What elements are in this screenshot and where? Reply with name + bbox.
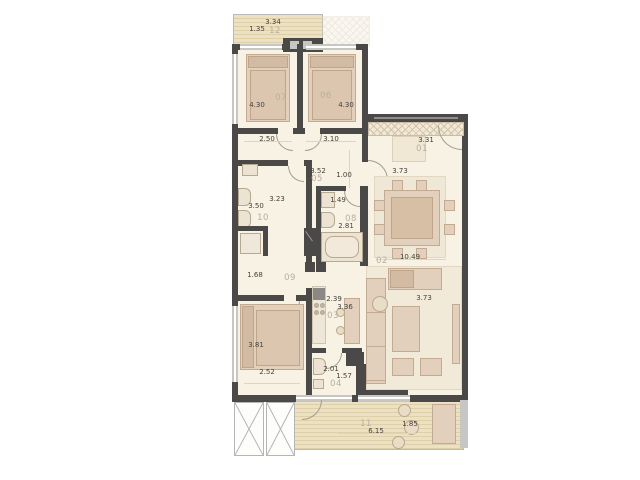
stove-burner xyxy=(314,303,319,308)
dim-hall-right: 3.73 xyxy=(392,167,408,175)
wall xyxy=(293,128,305,134)
dim-kitchen-depth: 3.36 xyxy=(337,303,353,311)
dim-bedroom-bottom-height: 3.81 xyxy=(248,341,264,349)
dim-entry-width: 3.31 xyxy=(418,136,434,144)
wall xyxy=(232,295,284,301)
bathtub-inner xyxy=(325,236,359,258)
balcony-door-glazing xyxy=(358,395,410,402)
bed-bottom-blanket xyxy=(256,310,300,366)
room-number-04-wc: 04 xyxy=(330,379,342,389)
wall xyxy=(316,186,346,191)
ottoman xyxy=(420,358,442,376)
room-number-06-bedroom: 06 xyxy=(320,91,332,101)
dim-bed07-height: 4.30 xyxy=(249,101,265,109)
side-table-round xyxy=(372,296,388,312)
dim-bath08-width: 1.49 xyxy=(330,196,346,204)
dim-bath10-depth: 3.50 xyxy=(248,202,264,210)
room-number-11-balcony-bottom: 11 xyxy=(360,419,372,429)
dim-living-length: 10.49 xyxy=(400,253,420,261)
dim-bed06-height: 4.30 xyxy=(338,101,354,109)
dim-corridor-depth: 1.00 xyxy=(336,171,352,179)
dining-table-top xyxy=(391,197,433,239)
room-number-03-kitchen: 03 xyxy=(327,311,339,321)
dim-balcony11-depth: 1.85 xyxy=(402,420,418,428)
shower-wall xyxy=(263,226,268,256)
room-number-10-bathroom: 10 xyxy=(257,213,269,223)
shower-tray xyxy=(240,233,261,254)
window xyxy=(232,306,238,382)
wall xyxy=(312,348,326,353)
dim-hall09-width: 1.68 xyxy=(247,271,263,279)
dim-bedroom-bottom-width: 2.52 xyxy=(259,368,275,376)
wall xyxy=(232,160,288,166)
balcony-edge-column xyxy=(460,400,468,448)
floor-plan-canvas: 3.34 1.35 4.30 4.30 2.50 3.10 3.31 3.52 … xyxy=(0,0,640,480)
elevator-shaft-left xyxy=(234,402,264,456)
ottoman xyxy=(392,358,414,376)
room-number-12-balcony-top: 12 xyxy=(269,26,281,36)
room-number-01-entry: 01 xyxy=(416,144,428,154)
coffee-table xyxy=(392,306,420,352)
bed-07-pillows xyxy=(248,56,288,68)
planter xyxy=(398,404,411,417)
wall xyxy=(362,44,368,122)
room-number-05-corridor: 05 xyxy=(311,174,323,184)
balcony-sofa xyxy=(432,404,456,444)
stove-burner xyxy=(320,303,325,308)
dim-kitchen-width: 2.39 xyxy=(326,295,342,303)
appliance-block xyxy=(305,262,315,272)
toilet xyxy=(321,212,335,228)
dim-bed06-width: 3.10 xyxy=(323,135,339,143)
dim-bed07-width: 2.50 xyxy=(259,135,275,143)
sofa-cushion xyxy=(390,270,414,288)
room-number-02-living: 02 xyxy=(376,256,388,266)
entry-high-window xyxy=(374,117,458,119)
dim-balcony12-depth: 1.35 xyxy=(249,25,265,33)
appliance-block xyxy=(316,262,326,272)
wall xyxy=(462,114,468,402)
bed-06-pillows xyxy=(310,56,354,68)
kitchen-sink xyxy=(313,288,325,300)
window xyxy=(232,54,238,124)
window xyxy=(240,44,282,50)
roof-overhang-hatch xyxy=(322,16,370,46)
wall xyxy=(297,44,303,128)
dim-balcony12-width: 3.34 xyxy=(265,18,281,26)
sink xyxy=(242,164,258,176)
dim-living-width: 3.73 xyxy=(416,294,432,302)
room-number-09-hall: 09 xyxy=(284,273,296,283)
tv-unit xyxy=(452,304,460,364)
dimension-line xyxy=(349,150,350,188)
room-number-07-bedroom: 07 xyxy=(275,93,287,103)
sofa-vertical xyxy=(366,278,386,384)
bed-06-blanket xyxy=(312,70,352,120)
dim-bath10-width: 3.23 xyxy=(269,195,285,203)
stove-burner xyxy=(320,310,325,315)
bed-bottom-pillows xyxy=(242,306,254,368)
bar-stool xyxy=(336,326,345,335)
elevator-shaft-right xyxy=(266,402,295,456)
room-number-08-bathroom: 08 xyxy=(345,214,357,224)
wall xyxy=(320,128,368,134)
sink xyxy=(313,379,324,389)
dining-chair xyxy=(444,224,455,235)
wall xyxy=(232,128,278,134)
planter xyxy=(392,436,405,449)
window xyxy=(306,44,356,50)
dimension-line xyxy=(244,383,300,384)
stove-burner xyxy=(314,310,319,315)
dining-chair xyxy=(444,200,455,211)
